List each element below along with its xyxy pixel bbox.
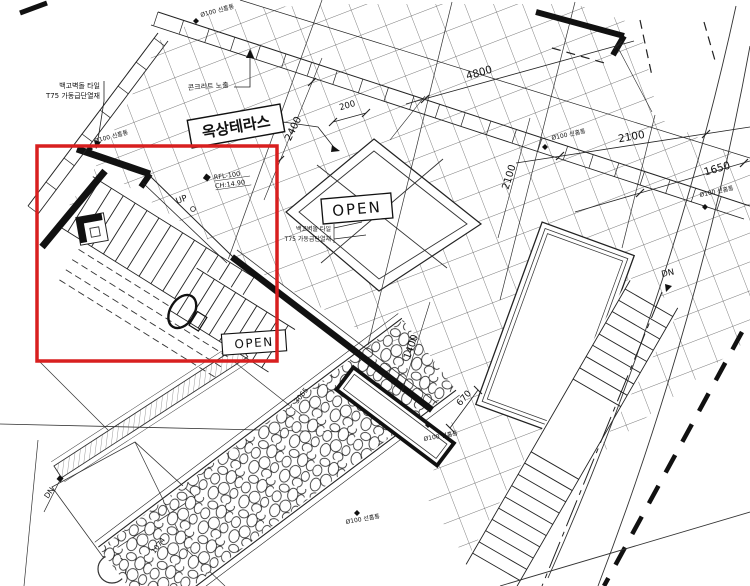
roof-plan-sheet: 4800 2400 2100 1650 2100 200 1400 670 30… [0,0,750,586]
open-lower-label: OPEN [234,335,274,352]
dn-lower-left-label: DN [42,486,56,500]
dn-marker-lower-left: DN [42,475,63,512]
finish-callout-line1: 백고벽돌 타일 [59,81,100,90]
column [76,213,108,245]
finish-callout2-line1: 백고벽돌 타일 [296,225,331,233]
svg-text:Ø100 선홈통: Ø100 선홈통 [345,512,381,526]
finish-callout2-line2: T75 가동급단열재 [284,235,331,243]
roof-plan-drawing: 4800 2400 2100 1650 2100 200 1400 670 30… [0,0,750,586]
finish-callout-line2: T75 가동급단열재 [45,91,100,100]
drain-callout-6: Ø100 선홈통 [345,510,381,526]
open-center-label-box: OPEN [321,193,393,224]
